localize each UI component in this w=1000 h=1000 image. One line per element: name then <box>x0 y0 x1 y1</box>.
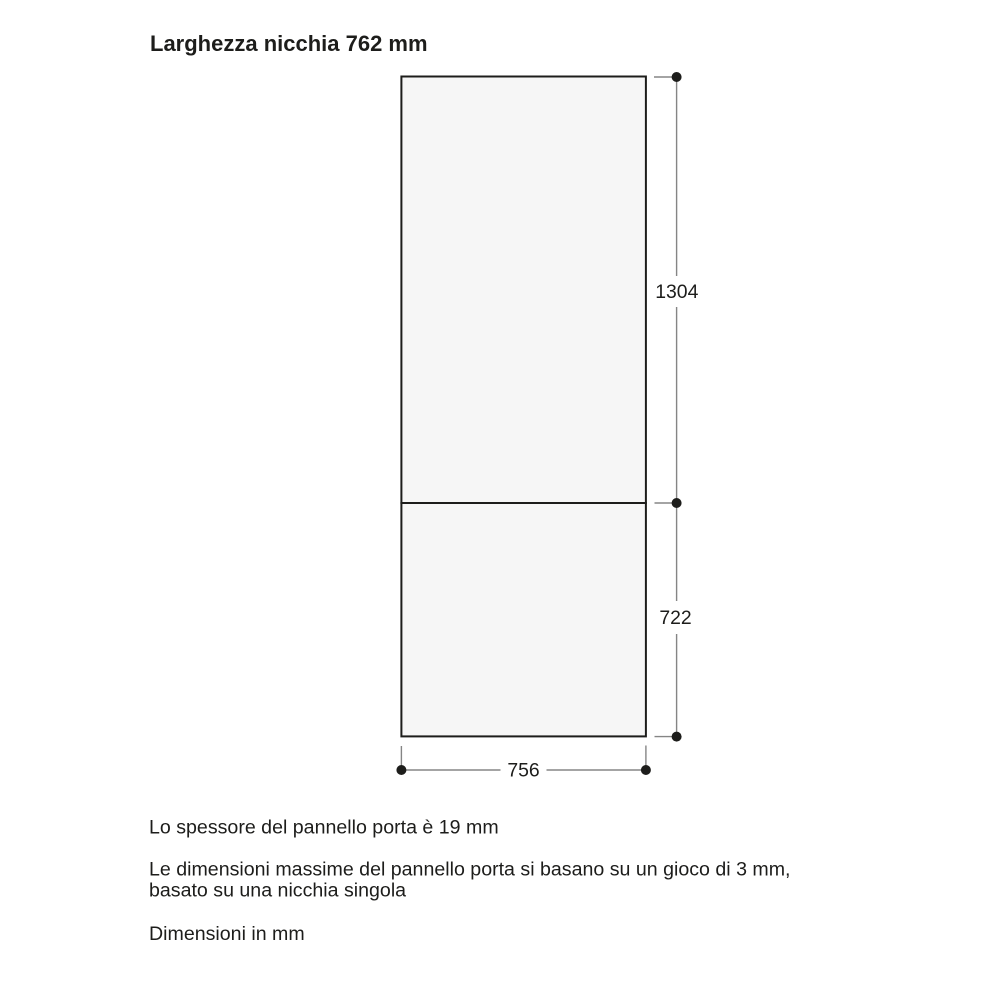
svg-text:756: 756 <box>507 759 539 781</box>
svg-text:Lo spessore del pannello porta: Lo spessore del pannello porta è 19 mm <box>149 816 499 838</box>
svg-text:Dimensioni in mm: Dimensioni in mm <box>149 923 305 945</box>
svg-text:Larghezza nicchia 762 mm: Larghezza nicchia 762 mm <box>150 31 428 56</box>
svg-text:1304: 1304 <box>655 281 698 303</box>
svg-text:Le dimensioni massime del pann: Le dimensioni massime del pannello porta… <box>149 858 791 880</box>
svg-text:basato su una nicchia singola: basato su una nicchia singola <box>149 879 406 901</box>
svg-text:722: 722 <box>659 607 691 629</box>
